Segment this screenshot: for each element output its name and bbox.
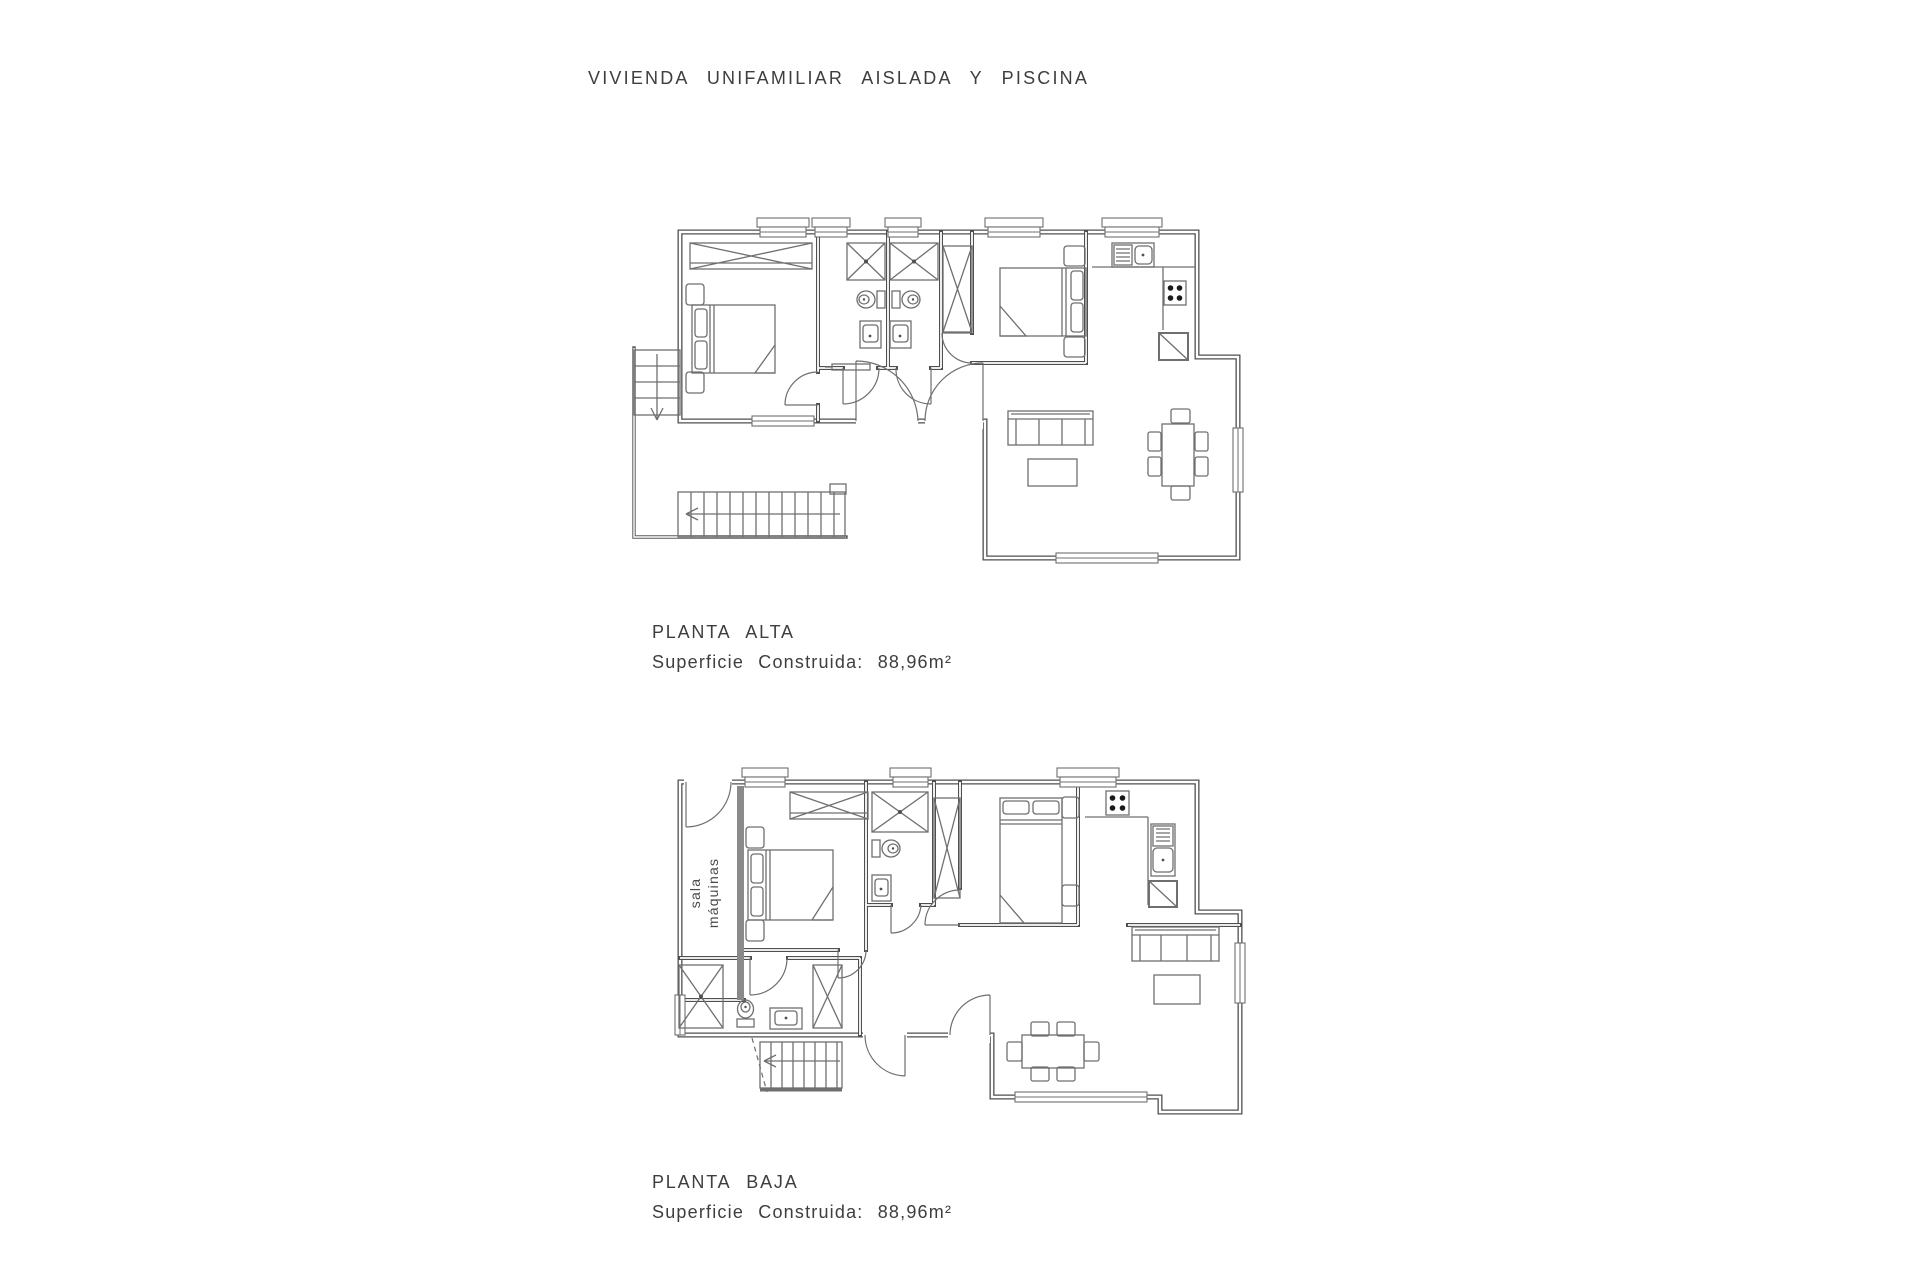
baja-machine-room-label: sala máquinas: [687, 858, 721, 928]
alta-sofa: [1008, 411, 1093, 445]
plan-alta-area-label: Superficie Construida:: [652, 652, 864, 672]
alta-exterior-walls: [634, 232, 1238, 558]
alta-kitchen-hob: [1164, 281, 1186, 305]
baja-closet: [934, 798, 960, 898]
floor-plan-sheet: VIVIENDA UNIFAMILIAR AISLADA Y PISCINA: [0, 0, 1920, 1280]
baja-toilet-bottom: [737, 1000, 754, 1027]
alta-kitchen-sink: [1112, 243, 1154, 267]
plan-baja-label: PLANTA BAJA Superficie Construida: 88,96…: [652, 1172, 952, 1223]
baja-toilet-middle: [872, 840, 900, 857]
baja-sofa: [1132, 927, 1219, 961]
plan-baja-area-value: 88,96m²: [878, 1202, 952, 1222]
alta-dining-table: [1148, 409, 1208, 500]
baja-bedroom2-bed: [1000, 797, 1079, 923]
machine-room-line1: sala: [687, 878, 703, 908]
alta-radiator: [825, 364, 870, 370]
baja-shower-middle: [872, 792, 928, 832]
baja-machine-room-door-gap: [684, 776, 732, 790]
alta-entrance-gap-left: [856, 413, 918, 429]
sheet-title: VIVIENDA UNIFAMILIAR AISLADA Y PISCINA: [588, 68, 1089, 89]
alta-shower-2: [890, 243, 938, 280]
baja-living-door-gap: [948, 1029, 990, 1043]
baja-kitchen-counter: [1085, 817, 1148, 905]
plan-baja-area: Superficie Construida: 88,96m²: [652, 1202, 952, 1223]
alta-sink-1: [860, 321, 881, 348]
alta-closet: [943, 246, 972, 332]
plan-baja-drawing: sala máquinas: [600, 755, 1280, 1135]
alta-shower-1: [847, 243, 885, 280]
alta-bedroom2-bed: [1000, 246, 1086, 357]
baja-sink-middle: [872, 875, 891, 901]
baja-entrance-gap: [863, 1029, 907, 1043]
alta-entrance-gap-right: [925, 413, 983, 429]
alta-sink-2: [890, 321, 911, 348]
baja-kitchen: [1085, 791, 1177, 907]
baja-bedroom1-wardrobe: [790, 792, 868, 819]
baja-sink-bottom: [770, 1008, 802, 1029]
plan-alta-area-value: 88,96m²: [878, 652, 952, 672]
alta-toilet-2: [892, 291, 920, 308]
plan-alta-name: PLANTA ALTA: [652, 622, 952, 643]
alta-stairs-long: [678, 484, 846, 537]
plan-alta-drawing: [600, 200, 1280, 580]
baja-dining-table: [1007, 1022, 1099, 1081]
alta-toilet-1: [857, 291, 885, 308]
plan-alta-label: PLANTA ALTA Superficie Construida: 88,96…: [652, 622, 952, 673]
alta-stairs-small: [634, 350, 680, 420]
baja-machine-room-wall: [737, 786, 744, 1000]
alta-fridge-icon: [1159, 333, 1188, 360]
alta-kitchen: [1092, 243, 1195, 360]
alta-bedroom1-wardrobe: [690, 243, 812, 269]
alta-doors: [785, 333, 983, 421]
machine-room-line2: máquinas: [705, 858, 721, 928]
baja-bedroom1-bed: [746, 827, 833, 941]
baja-doors: [686, 782, 990, 1076]
plan-baja-name: PLANTA BAJA: [652, 1172, 952, 1193]
baja-kitchen-hob: [1106, 791, 1129, 815]
baja-kitchen-sink: [1151, 824, 1175, 876]
baja-fridge-icon: [1149, 881, 1177, 907]
alta-windows: [752, 218, 1243, 563]
baja-stairs: [752, 1038, 842, 1092]
plan-alta-area: Superficie Construida: 88,96m²: [652, 652, 952, 673]
alta-interior-walls: [818, 232, 1086, 421]
alta-coffee-table: [1028, 459, 1077, 486]
plan-baja-area-label: Superficie Construida:: [652, 1202, 864, 1222]
baja-closet-bottom: [813, 965, 842, 1028]
baja-coffee-table: [1154, 975, 1200, 1004]
alta-bedroom1-bed: [686, 284, 775, 393]
baja-shower-bottom: [679, 965, 723, 1028]
